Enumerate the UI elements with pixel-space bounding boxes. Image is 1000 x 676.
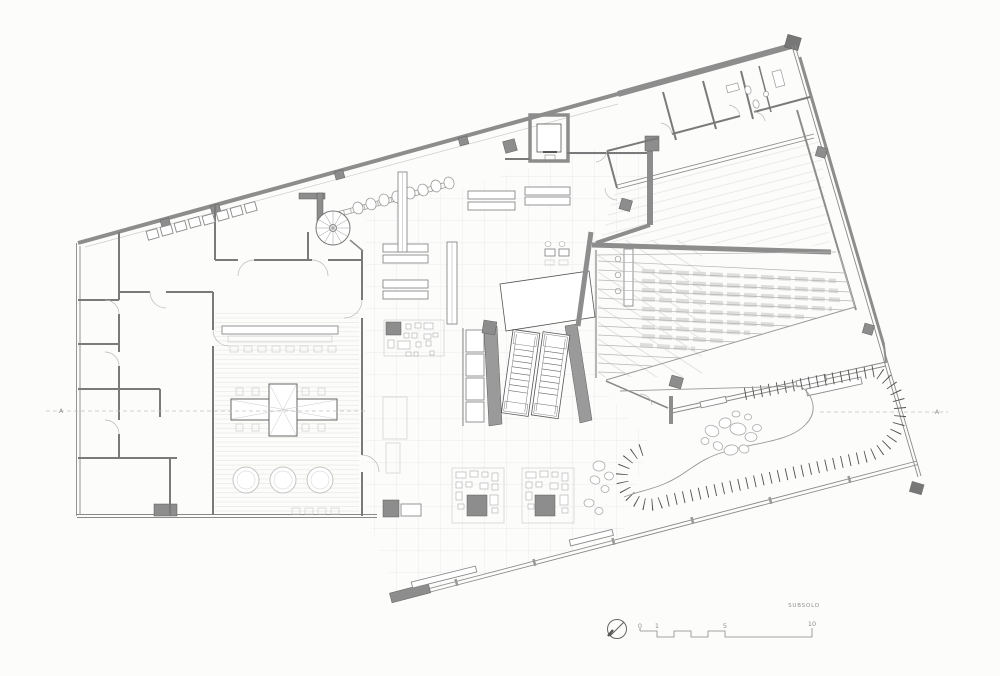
scale-bar: 0 1 5 10 [638,620,816,637]
bathroom-fixtures [726,70,785,109]
axis-label-a-left: A [59,408,64,415]
bottom-left-wall [77,515,377,518]
scale-tick-1: 1 [655,622,659,630]
floor-label: SUBSOLO [788,603,820,609]
ramp-stairs [622,371,900,505]
facade-wall-thick-ne [618,45,795,94]
right-site-wall [792,45,924,495]
floor-plan-drawing: A A SUBSOLO 0 1 5 10 [0,0,1000,676]
hall-sw-block [383,500,399,517]
title-block: SUBSOLO 0 1 5 10 [608,603,820,639]
round-tables [233,467,333,493]
north-arrow-icon [608,620,627,639]
bottom-wall-pilaster [154,504,177,516]
scale-tick-10: 10 [808,620,816,628]
site-wall-end-cap [909,481,925,495]
floor-plan-sheet: A A SUBSOLO 0 1 5 10 [0,0,1000,676]
axis-label-a-right: A [935,409,940,416]
scale-tick-0: 0 [638,622,642,630]
left-wall [77,243,81,516]
scale-tick-5: 5 [723,622,727,630]
